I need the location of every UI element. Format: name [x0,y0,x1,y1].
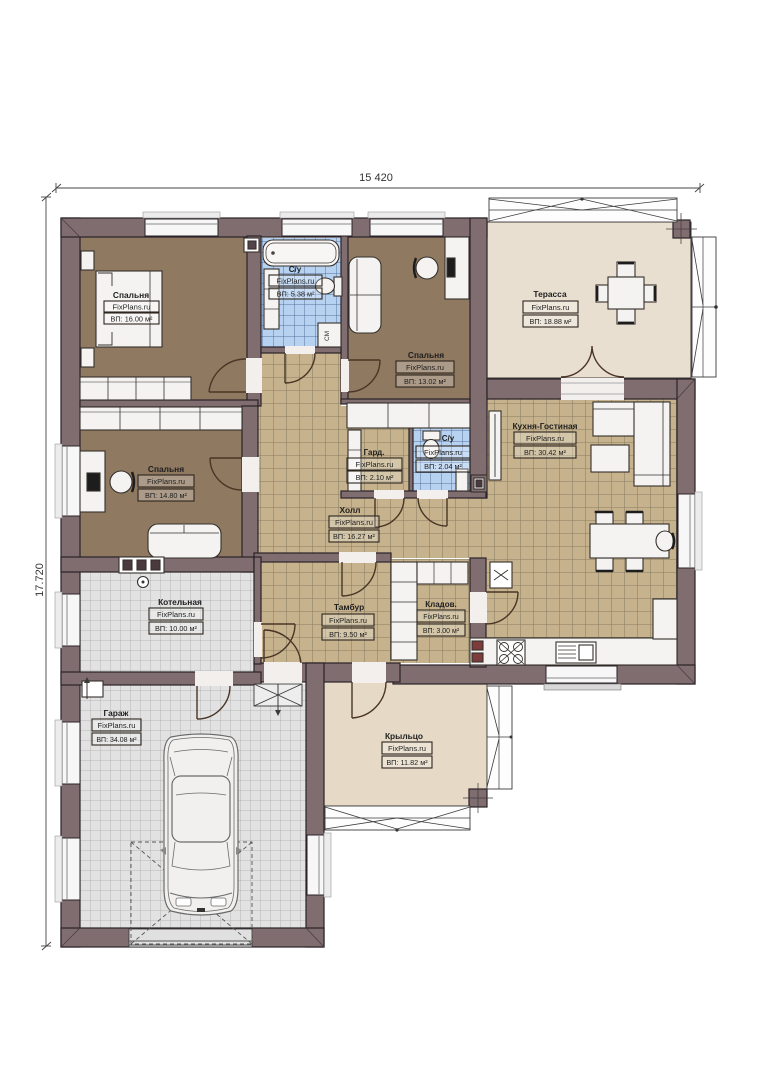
svg-text:Холл: Холл [339,505,360,515]
svg-text:ВП: 10.00 м²: ВП: 10.00 м² [155,624,197,633]
svg-text:Кухня-Гостиная: Кухня-Гостиная [512,421,577,431]
svg-text:FixPlans.ru: FixPlans.ru [277,277,315,286]
svg-text:FixPlans.ru: FixPlans.ru [98,721,136,730]
svg-text:ВП: 34.08 м²: ВП: 34.08 м² [96,737,137,744]
svg-text:ВП: 14.80 м²: ВП: 14.80 м² [145,491,187,500]
svg-text:FixPlans.ru: FixPlans.ru [335,518,373,527]
svg-text:17.720: 17.720 [34,563,46,597]
svg-text:Гараж: Гараж [103,708,128,718]
svg-text:СМ: СМ [324,331,331,341]
svg-text:FixPlans.ru: FixPlans.ru [147,477,185,486]
svg-text:FixPlans.ru: FixPlans.ru [356,460,394,469]
svg-text:ВП: 16.27 м²: ВП: 16.27 м² [333,532,375,541]
svg-text:Терасса: Терасса [533,289,567,299]
svg-text:Кладов.: Кладов. [425,600,457,609]
svg-text:FixPlans.ru: FixPlans.ru [532,303,570,312]
svg-text:С/у: С/у [442,434,455,443]
svg-text:FixPlans.ru: FixPlans.ru [388,744,426,753]
svg-text:FixPlans.ru: FixPlans.ru [157,610,195,619]
svg-text:ВП: 5.38 м²: ВП: 5.38 м² [277,290,315,299]
svg-text:Спальня: Спальня [148,464,184,474]
svg-text:ВП: 2.10 м²: ВП: 2.10 м² [356,473,394,482]
svg-text:С/у: С/у [289,265,302,274]
svg-text:FixPlans.ru: FixPlans.ru [329,616,367,625]
svg-text:ВП: 3.00 м²: ВП: 3.00 м² [423,628,460,635]
svg-text:FixPlans.ru: FixPlans.ru [113,303,151,312]
svg-text:ВП: 30.42 м²: ВП: 30.42 м² [524,448,566,457]
svg-text:Гард.: Гард. [364,448,385,457]
svg-text:ВП: 11.82 м²: ВП: 11.82 м² [386,758,428,767]
svg-text:Спальня: Спальня [113,290,149,300]
svg-text:Котельная: Котельная [158,597,202,607]
svg-text:Крыльцо: Крыльцо [385,731,423,741]
svg-text:FixPlans.ru: FixPlans.ru [406,363,444,372]
svg-text:ВП: 18.88 м²: ВП: 18.88 м² [530,317,572,326]
svg-text:Спальня: Спальня [408,350,444,360]
svg-text:15 420: 15 420 [359,172,393,184]
svg-text:Тамбур: Тамбур [334,602,364,612]
svg-text:FixPlans.ru: FixPlans.ru [423,613,459,621]
svg-text:FixPlans.ru: FixPlans.ru [424,448,462,457]
svg-text:ВП: 2.04 м²: ВП: 2.04 м² [424,462,462,471]
svg-text:FixPlans.ru: FixPlans.ru [526,434,564,443]
svg-text:ВП: 16.00 м²: ВП: 16.00 м² [111,315,153,324]
svg-text:ВП: 13.02 м²: ВП: 13.02 м² [404,377,446,386]
svg-text:ВП: 9.50 м²: ВП: 9.50 м² [329,630,367,639]
